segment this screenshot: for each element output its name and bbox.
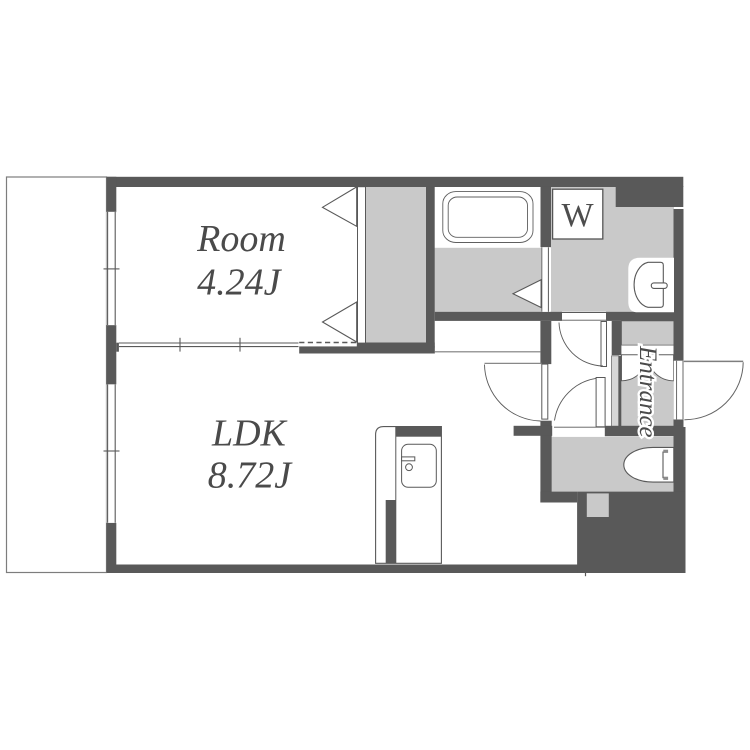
svg-text:Room: Room	[196, 218, 286, 260]
svg-text:Entrance: Entrance	[634, 345, 661, 438]
svg-text:8.72J: 8.72J	[208, 455, 294, 497]
svg-text:4.24J: 4.24J	[197, 262, 283, 304]
svg-text:W: W	[562, 197, 595, 234]
svg-text:LDK: LDK	[211, 413, 288, 455]
